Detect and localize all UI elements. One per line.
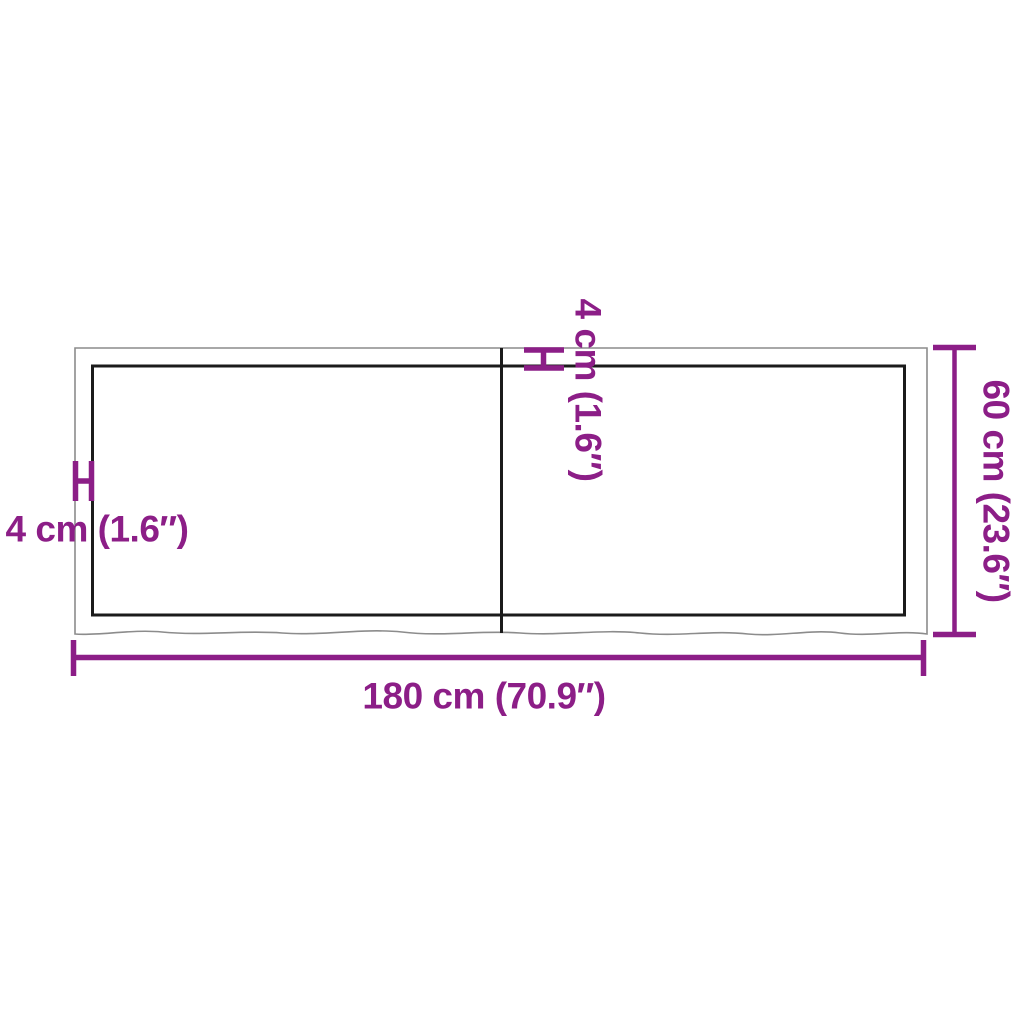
thickness-side-label: 4 cm (1.6″) (6, 511, 189, 548)
dimension-diagram: 4 cm (1.6″) 4 cm (1.6″) 60 cm (23.6″) 18… (0, 0, 1024, 1024)
depth-dimension-line (933, 348, 976, 635)
tabletop-inner-outline (93, 366, 905, 615)
width-label: 180 cm (70.9″) (362, 678, 605, 715)
width-dimension-line (74, 640, 924, 676)
depth-label: 60 cm (23.6″) (978, 379, 1015, 602)
thickness-marker-left (73, 461, 94, 501)
thickness-top-label: 4 cm (1.6″) (570, 299, 607, 482)
thickness-marker-top (524, 348, 564, 371)
